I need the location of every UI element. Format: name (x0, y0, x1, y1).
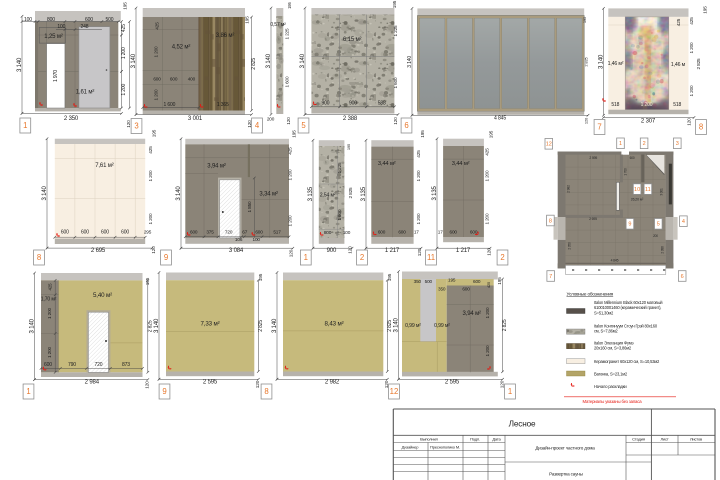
svg-text:1 200: 1 200 (689, 85, 694, 97)
svg-text:120: 120 (289, 249, 294, 257)
svg-text:1,46 м²: 1,46 м² (608, 61, 624, 67)
svg-text:2 825: 2 825 (258, 320, 264, 332)
svg-text:Вагонка, S=23,1м2: Вагонка, S=23,1м2 (594, 371, 628, 376)
svg-text:4: 4 (255, 121, 260, 130)
svg-text:1 200: 1 200 (485, 345, 490, 357)
svg-text:800: 800 (324, 230, 332, 235)
svg-text:1 200: 1 200 (148, 213, 153, 225)
svg-text:1: 1 (304, 253, 308, 262)
svg-text:425: 425 (154, 22, 159, 30)
svg-text:Начало раскладки: Начало раскладки (594, 384, 627, 389)
svg-text:1 200: 1 200 (47, 346, 52, 358)
svg-text:9: 9 (162, 387, 166, 396)
svg-text:195: 195 (497, 277, 502, 285)
svg-text:Лист: Лист (660, 437, 668, 442)
svg-text:1 200: 1 200 (288, 169, 293, 181)
svg-text:900: 900 (349, 101, 357, 107)
svg-text:1 200: 1 200 (154, 89, 159, 101)
svg-text:3 140: 3 140 (42, 185, 48, 200)
svg-text:3: 3 (134, 122, 138, 131)
svg-text:0,57 м²: 0,57 м² (270, 22, 286, 28)
svg-text:1: 1 (23, 121, 27, 130)
svg-text:3 140: 3 140 (272, 318, 278, 333)
svg-text:3 135: 3 135 (432, 185, 438, 200)
svg-text:Преснополико М.: Преснополико М. (430, 445, 460, 450)
svg-text:518: 518 (673, 102, 681, 108)
svg-text:6: 6 (681, 274, 684, 280)
svg-text:2 350: 2 350 (64, 116, 79, 122)
svg-text:518: 518 (611, 102, 619, 108)
svg-text:8: 8 (699, 123, 703, 132)
svg-text:1 200: 1 200 (154, 46, 159, 58)
svg-text:Стадия: Стадия (632, 437, 645, 442)
svg-text:1 600: 1 600 (337, 209, 342, 221)
svg-text:425: 425 (416, 150, 421, 158)
svg-text:2 825: 2 825 (387, 320, 393, 332)
svg-text:200: 200 (267, 117, 275, 122)
svg-text:3 140: 3 140 (266, 53, 272, 68)
svg-text:600: 600 (462, 287, 470, 292)
svg-text:1 600: 1 600 (393, 77, 398, 89)
svg-text:3 140: 3 140 (393, 317, 399, 332)
svg-text:600: 600 (473, 279, 481, 284)
svg-text:4 845: 4 845 (611, 258, 619, 262)
svg-text:2,54 м²: 2,54 м² (320, 193, 336, 199)
svg-text:12: 12 (546, 142, 552, 148)
svg-text:120: 120 (151, 246, 156, 254)
svg-text:3 001: 3 001 (660, 188, 664, 196)
svg-text:8: 8 (37, 253, 41, 262)
svg-text:600: 600 (153, 77, 161, 82)
svg-text:350: 350 (438, 287, 446, 292)
svg-text:2 825: 2 825 (348, 187, 353, 199)
svg-text:400: 400 (188, 77, 196, 82)
svg-text:900: 900 (327, 248, 337, 254)
svg-text:Лесное: Лесное (509, 420, 536, 429)
svg-text:2 388: 2 388 (343, 116, 358, 122)
svg-text:3 135: 3 135 (308, 186, 314, 201)
svg-text:2 825: 2 825 (147, 320, 153, 332)
svg-text:11: 11 (427, 253, 435, 262)
svg-text:720: 720 (225, 230, 233, 235)
svg-text:2 825: 2 825 (251, 58, 257, 70)
svg-text:3: 3 (676, 141, 679, 147)
svg-text:20x160 см, S=3,86м2: 20x160 см, S=3,86м2 (594, 346, 632, 351)
svg-text:120: 120 (286, 117, 291, 125)
svg-text:Керамогранит 60x120 см, S=10,5: Керамогранит 60x120 см, S=10,53м2 (594, 359, 660, 364)
svg-text:1,61 м²: 1,61 м² (76, 90, 95, 96)
svg-text:2: 2 (500, 253, 504, 262)
svg-text:2 388: 2 388 (660, 246, 664, 254)
svg-text:2 982: 2 982 (566, 185, 570, 193)
svg-text:295: 295 (144, 230, 152, 235)
svg-text:1,70 м²: 1,70 м² (41, 297, 57, 303)
svg-text:195: 195 (392, 0, 397, 8)
svg-text:1 200: 1 200 (121, 47, 127, 59)
svg-text:195: 195 (245, 16, 250, 24)
svg-text:425: 425 (47, 283, 52, 291)
svg-text:6: 6 (404, 121, 408, 130)
svg-text:1 225: 1 225 (393, 25, 398, 37)
svg-text:3,94 м²: 3,94 м² (462, 311, 481, 317)
svg-text:3 140: 3 140 (176, 186, 182, 201)
svg-text:2 350: 2 350 (568, 242, 572, 250)
svg-text:600: 600 (255, 230, 263, 235)
svg-text:3,86 м²: 3,86 м² (216, 33, 235, 39)
svg-text:425: 425 (486, 281, 491, 288)
svg-text:Подп.: Подп. (470, 437, 480, 442)
svg-text:195: 195 (152, 129, 157, 137)
svg-text:2 984: 2 984 (85, 379, 100, 385)
svg-text:3 140: 3 140 (154, 318, 160, 333)
svg-text:3 140: 3 140 (131, 53, 137, 68)
svg-text:425: 425 (121, 24, 127, 32)
svg-text:500: 500 (106, 17, 114, 23)
svg-text:1 225: 1 225 (337, 162, 342, 174)
svg-text:120: 120 (393, 117, 398, 125)
svg-text:600: 600 (450, 230, 458, 235)
svg-text:1 200: 1 200 (416, 170, 421, 182)
svg-text:3 001: 3 001 (188, 116, 203, 122)
svg-text:517: 517 (273, 230, 281, 235)
svg-text:195: 195 (287, 2, 292, 9)
svg-text:Листов: Листов (690, 437, 702, 442)
svg-text:195: 195 (582, 16, 587, 23)
svg-text:120: 120 (486, 248, 491, 256)
svg-text:195: 195 (291, 130, 296, 138)
svg-text:425: 425 (689, 17, 694, 25)
svg-text:1 200: 1 200 (148, 170, 153, 182)
svg-text:120: 120 (584, 117, 589, 124)
svg-text:800: 800 (47, 17, 55, 23)
svg-text:1 200: 1 200 (485, 307, 490, 319)
svg-text:1,25 м²: 1,25 м² (44, 34, 63, 40)
svg-text:1 200: 1 200 (641, 102, 653, 108)
svg-text:120: 120 (499, 380, 504, 388)
svg-text:120: 120 (145, 381, 150, 389)
svg-text:1 700: 1 700 (623, 168, 627, 176)
svg-text:7: 7 (597, 123, 601, 132)
svg-text:7: 7 (549, 274, 552, 280)
svg-text:17: 17 (414, 230, 419, 235)
svg-text:3 140: 3 140 (17, 57, 23, 72)
svg-text:3,94 м²: 3,94 м² (207, 163, 226, 169)
svg-text:195: 195 (703, 6, 708, 14)
svg-text:120: 120 (417, 248, 422, 256)
svg-text:11: 11 (645, 187, 651, 193)
svg-text:195: 195 (123, 2, 128, 10)
svg-text:1: 1 (619, 141, 622, 147)
svg-text:S=51,30м2: S=51,30м2 (594, 310, 614, 315)
svg-text:425: 425 (148, 146, 153, 154)
svg-text:873: 873 (122, 362, 130, 368)
svg-text:600: 600 (81, 230, 89, 236)
svg-text:8: 8 (264, 387, 268, 396)
svg-text:195: 195 (420, 130, 425, 138)
svg-text:248: 248 (81, 24, 89, 30)
svg-text:600: 600 (170, 77, 178, 82)
svg-text:2 695: 2 695 (91, 248, 106, 254)
svg-text:3 140: 3 140 (598, 54, 604, 69)
svg-text:600: 600 (61, 230, 69, 236)
svg-text:Условные обозначения: Условные обозначения (567, 292, 614, 297)
svg-text:425: 425 (676, 18, 681, 26)
svg-text:3 140: 3 140 (300, 53, 306, 68)
svg-text:26,20 м²: 26,20 м² (631, 197, 644, 201)
svg-text:600: 600 (398, 230, 406, 235)
svg-text:3 084: 3 084 (229, 248, 244, 254)
svg-text:106: 106 (235, 237, 243, 242)
svg-text:3,44 м²: 3,44 м² (452, 161, 470, 167)
svg-text:1 200: 1 200 (485, 213, 490, 225)
svg-text:4: 4 (682, 219, 685, 225)
svg-text:195: 195 (448, 278, 456, 283)
svg-text:0,99 м²: 0,99 м² (434, 323, 450, 329)
svg-text:17: 17 (438, 230, 443, 235)
svg-text:3 140: 3 140 (29, 318, 35, 333)
svg-text:1 600: 1 600 (164, 102, 176, 108)
svg-text:790: 790 (68, 362, 76, 368)
svg-text:720: 720 (94, 362, 102, 368)
svg-text:1 365: 1 365 (217, 102, 229, 108)
svg-text:1: 1 (508, 387, 512, 396)
svg-text:1 850: 1 850 (247, 201, 252, 213)
svg-text:1 217: 1 217 (456, 248, 471, 254)
svg-text:1 200: 1 200 (121, 83, 127, 95)
svg-text:425: 425 (485, 148, 490, 156)
svg-text:9: 9 (164, 253, 168, 262)
svg-text:67: 67 (242, 230, 247, 235)
svg-text:Дата: Дата (492, 437, 501, 442)
svg-text:375: 375 (206, 230, 214, 235)
svg-text:600: 600 (121, 230, 129, 236)
svg-text:5: 5 (657, 222, 660, 228)
svg-text:2 825: 2 825 (584, 56, 589, 66)
svg-text:120: 120 (687, 118, 692, 126)
svg-text:1 200: 1 200 (288, 215, 293, 227)
svg-text:5: 5 (301, 121, 306, 130)
svg-text:см, S=7,86м2: см, S=7,86м2 (594, 329, 618, 334)
svg-text:4 845: 4 845 (494, 116, 506, 122)
svg-text:6,15 м²: 6,15 м² (343, 37, 362, 43)
svg-text:900: 900 (322, 101, 330, 107)
svg-text:350: 350 (414, 279, 422, 284)
svg-text:2: 2 (360, 253, 364, 262)
svg-text:Дизайн-проект частного дома: Дизайн-проект частного дома (535, 445, 595, 451)
svg-text:195: 195 (489, 130, 494, 138)
svg-text:2 695: 2 695 (589, 217, 597, 221)
svg-text:2 595: 2 595 (445, 379, 460, 385)
svg-text:1 225: 1 225 (285, 28, 290, 40)
svg-text:1 200: 1 200 (689, 42, 694, 54)
svg-text:1: 1 (26, 387, 30, 396)
svg-text:Материалы указаны без запаса: Материалы указаны без запаса (583, 399, 643, 404)
svg-text:3 140: 3 140 (407, 56, 413, 68)
svg-text:7,33 м²: 7,33 м² (200, 321, 219, 328)
svg-text:600: 600 (101, 230, 109, 236)
svg-text:3,34 м²: 3,34 м² (259, 191, 278, 197)
svg-text:1 600: 1 600 (285, 76, 290, 88)
svg-text:588: 588 (378, 101, 386, 107)
svg-text:600: 600 (44, 362, 52, 368)
svg-text:100: 100 (253, 237, 261, 242)
svg-text:5,40 м²: 5,40 м² (93, 292, 112, 299)
svg-text:600: 600 (378, 230, 386, 235)
svg-text:2 307: 2 307 (641, 118, 656, 124)
svg-text:120: 120 (255, 380, 260, 388)
svg-text:600: 600 (85, 17, 93, 23)
svg-text:1 217: 1 217 (385, 248, 400, 254)
svg-text:425: 425 (288, 147, 293, 155)
svg-text:600: 600 (630, 156, 635, 160)
svg-text:2 595: 2 595 (203, 379, 218, 385)
svg-text:12: 12 (390, 387, 399, 396)
svg-text:2 825: 2 825 (502, 319, 508, 331)
svg-text:10: 10 (634, 187, 640, 193)
svg-text:1,46 м: 1,46 м (671, 62, 686, 68)
svg-text:3,44 м²: 3,44 м² (378, 161, 396, 167)
svg-text:1 200: 1 200 (47, 307, 52, 319)
svg-text:9: 9 (628, 222, 631, 228)
svg-text:Дизайнер: Дизайнер (402, 445, 420, 450)
svg-text:0,99 м²: 0,99 м² (405, 323, 421, 329)
svg-text:1 200: 1 200 (485, 170, 490, 182)
svg-text:100: 100 (24, 17, 32, 23)
svg-text:100: 100 (57, 24, 65, 30)
svg-text:3 135: 3 135 (361, 186, 367, 201)
svg-text:2 982: 2 982 (325, 379, 340, 385)
svg-text:120: 120 (347, 246, 352, 254)
svg-text:7,61 м²: 7,61 м² (95, 163, 114, 169)
svg-text:600: 600 (190, 230, 198, 235)
svg-text:100: 100 (343, 230, 351, 235)
svg-text:2 825: 2 825 (696, 58, 701, 70)
svg-text:Развертка сауны: Развертка сауны (549, 472, 583, 477)
svg-text:195: 195 (346, 143, 351, 150)
svg-text:500: 500 (425, 279, 433, 284)
svg-text:2: 2 (643, 141, 646, 147)
svg-text:8: 8 (549, 218, 552, 224)
svg-text:Выполнил: Выполнил (420, 437, 439, 442)
svg-text:1 970: 1 970 (53, 70, 59, 82)
svg-text:2 595: 2 595 (589, 156, 597, 160)
svg-text:8,43 м²: 8,43 м² (324, 321, 343, 328)
svg-text:200: 200 (653, 234, 658, 238)
svg-text:120: 120 (126, 120, 131, 128)
svg-text:1 200: 1 200 (416, 213, 421, 225)
svg-text:4,52 м²: 4,52 м² (172, 45, 191, 51)
